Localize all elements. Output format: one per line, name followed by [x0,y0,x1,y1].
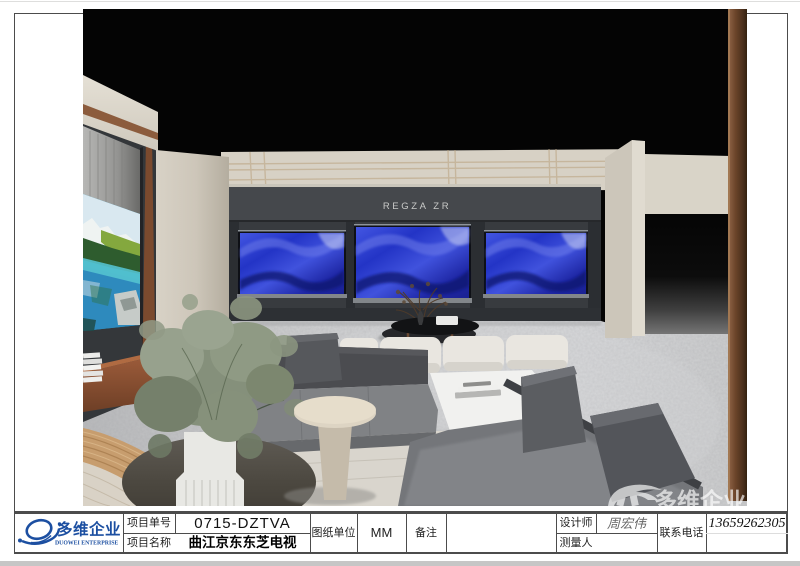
svg-text:DUOWEI ENTERPRISE: DUOWEI ENTERPRISE [55,541,118,547]
svg-text:多维企业: 多维企业 [654,488,746,506]
svg-text:多维企业: 多维企业 [57,520,121,539]
svg-text:REGZA ZR: REGZA ZR [383,201,451,212]
